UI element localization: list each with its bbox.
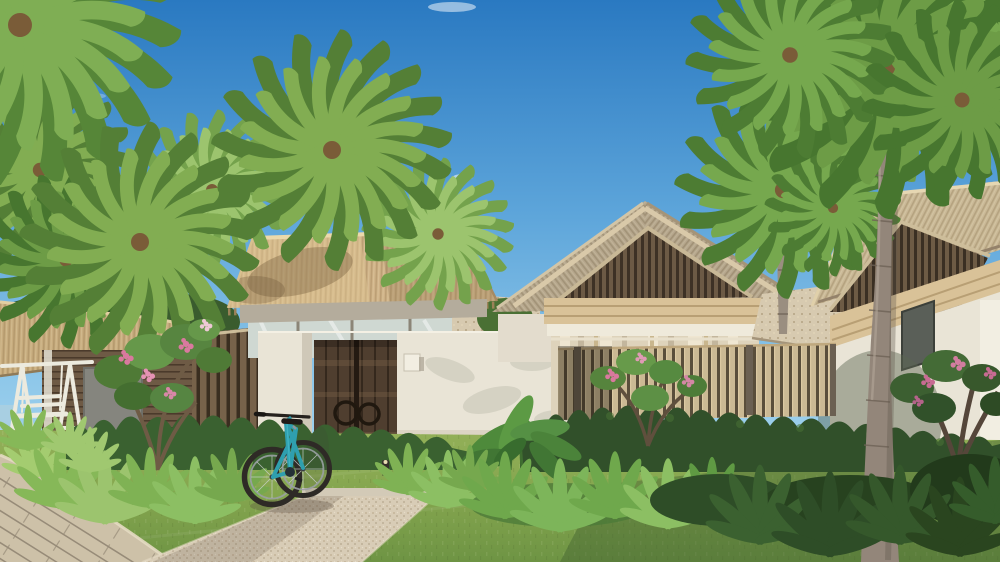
villa-rendering: 3D architectural rendering of a tropical… xyxy=(0,0,1000,562)
bike-saddle xyxy=(284,421,300,422)
rendering-canvas: 3D architectural rendering of a tropical… xyxy=(0,0,1000,562)
wall-lamp xyxy=(404,354,420,371)
wood-band xyxy=(544,298,766,324)
